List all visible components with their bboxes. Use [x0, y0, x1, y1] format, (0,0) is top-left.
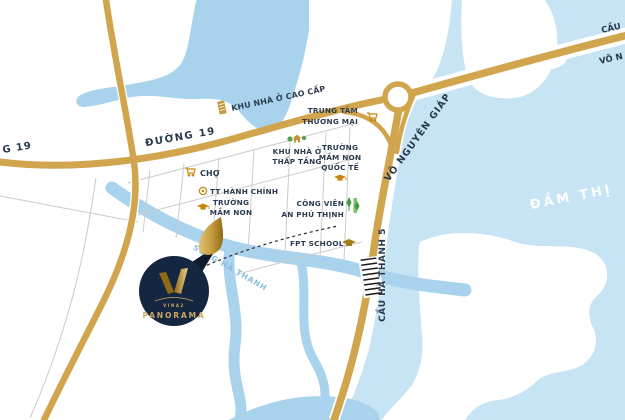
poi-khu-nha-o-thap-tang-1: KHU NHÀ Ở	[273, 146, 322, 156]
poi-trung-tam-thuong-mai-1: TRUNG TÂM	[308, 106, 358, 115]
map-canvas: ĐẦM THỊ SÔNG HÀ THANH ĐƯỜNG 19 G 19 VÕ N…	[0, 0, 625, 420]
poi-truong-mam-non-qt-2: MẦM NON	[319, 152, 362, 162]
poi-cong-vien-2: AN PHÚ THỊNH	[281, 210, 344, 219]
poi-truong-mam-non-qt-3: QUỐC TẾ	[321, 162, 359, 172]
project-logo: VINA2 PANORAMA	[139, 256, 209, 326]
poi-truong-mam-non-qt-1: TRƯỜNG	[322, 143, 358, 152]
location-map: ĐẦM THỊ SÔNG HÀ THANH ĐƯỜNG 19 G 19 VÕ N…	[0, 0, 625, 420]
logo-brand: PANORAMA	[142, 311, 205, 320]
poi-trung-tam-thuong-mai-2: THƯƠNG MẠI	[302, 117, 358, 126]
target-icon	[199, 187, 206, 194]
poi-fpt-school: FPT SCHOOL	[290, 239, 344, 248]
poi-khu-nha-o-thap-tang-2: THẤP TẦNG	[272, 156, 321, 166]
poi-cho: CHỢ	[200, 169, 220, 178]
poi-truong-mam-non-2: MẦM NON	[210, 207, 253, 217]
logo-brand-small: VINA2	[163, 303, 185, 308]
poi-tt-hanh-chinh: TT HÀNH CHÍNH	[210, 187, 278, 196]
roundabout	[385, 84, 411, 110]
poi-cong-vien-1: CÔNG VIÊN	[297, 199, 344, 208]
poi-truong-mam-non-1: TRƯỜNG	[213, 198, 249, 207]
